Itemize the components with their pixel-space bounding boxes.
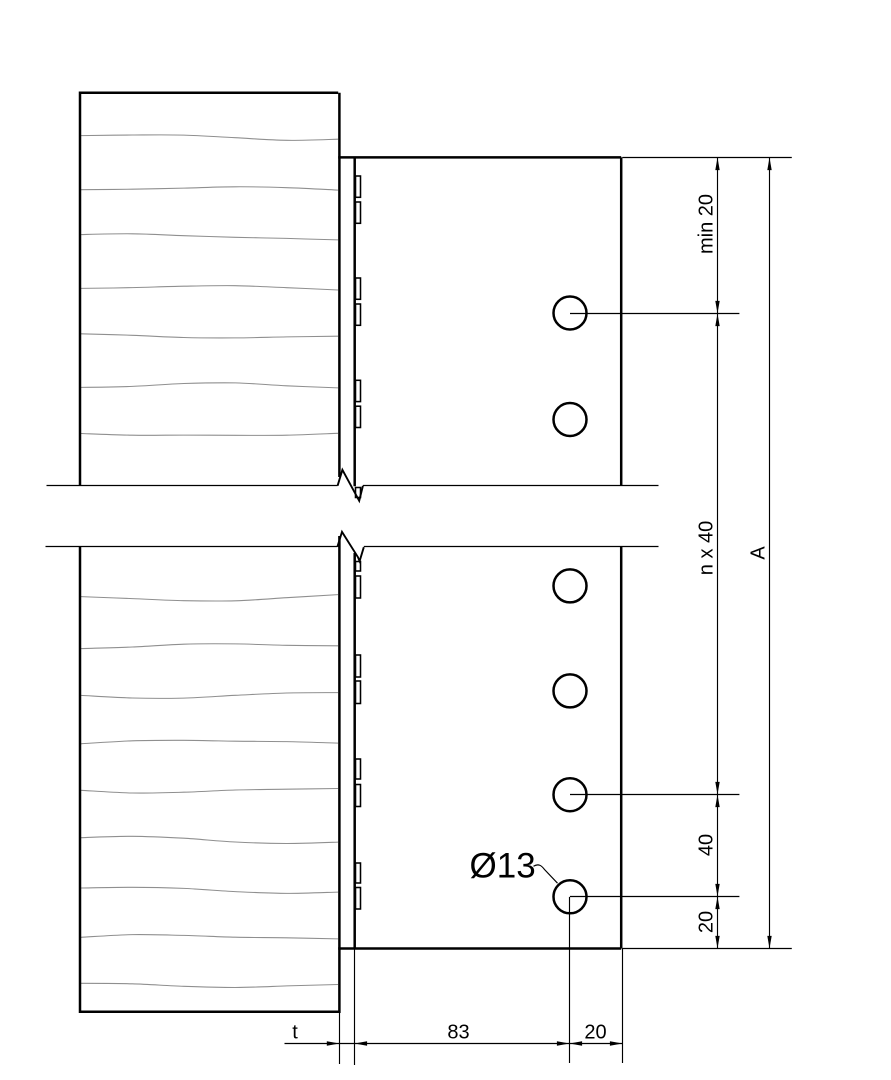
svg-text:40: 40 [696,834,718,856]
svg-text:n x 40: n x 40 [696,521,718,575]
svg-text:min 20: min 20 [696,194,718,254]
svg-text:83: 83 [447,1022,469,1044]
svg-text:Ø13: Ø13 [470,847,536,886]
svg-text:t: t [292,1022,298,1044]
svg-text:20: 20 [584,1022,606,1044]
svg-text:20: 20 [696,911,718,933]
svg-text:A: A [748,546,770,560]
